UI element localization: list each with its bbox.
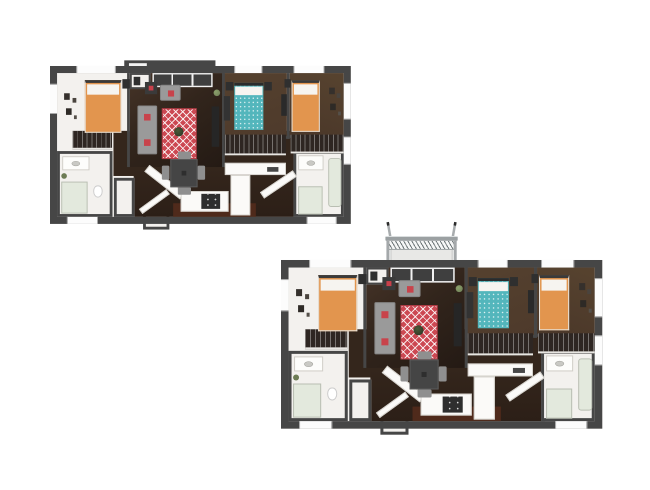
window <box>541 260 574 268</box>
dining-chair <box>400 366 408 381</box>
toilet-left <box>327 388 337 401</box>
vanity-right <box>546 355 573 371</box>
window <box>478 260 508 268</box>
wall-art-left <box>64 93 70 100</box>
nightstand-right <box>531 274 538 283</box>
dresser-middle <box>467 292 474 318</box>
closet-middle <box>468 333 533 355</box>
armchair <box>160 85 181 101</box>
wall-art-left <box>296 289 302 296</box>
vanity-left <box>294 356 323 371</box>
dining-chair <box>178 187 191 195</box>
bed-middle-teal <box>478 278 509 328</box>
floorplan-upper-left <box>50 66 351 224</box>
side-table <box>145 82 157 94</box>
balcony-deck <box>390 250 452 262</box>
window <box>281 279 289 311</box>
water-closet <box>114 178 135 217</box>
dining-chair <box>198 166 206 180</box>
kitchen-counter-peninsula <box>468 363 533 376</box>
nightstand-middle-right <box>510 277 518 286</box>
plant-icon <box>214 90 221 97</box>
bed-right-orange <box>539 275 569 330</box>
plant-icon <box>293 374 299 380</box>
coffee-table-plant <box>414 325 424 335</box>
kitchen-counter-right <box>474 376 495 419</box>
closet-right <box>538 333 595 353</box>
dresser-middle <box>224 96 230 120</box>
kitchen-counter-peninsula <box>225 163 286 175</box>
nightstand-left <box>358 274 366 284</box>
dining-chair <box>162 166 170 180</box>
bed-middle-teal <box>234 83 263 130</box>
stove <box>443 397 463 413</box>
dining-chair <box>418 390 432 398</box>
floorplan-lower-right <box>281 260 602 429</box>
shower-left <box>61 182 87 214</box>
dining-table <box>170 159 197 187</box>
plant-icon <box>61 173 67 179</box>
dresser-middle-right <box>528 290 534 313</box>
nightstand-right <box>285 79 291 87</box>
closet-left <box>73 131 112 150</box>
vanity-left <box>62 156 89 170</box>
sofa <box>374 302 395 354</box>
dining-chair <box>418 351 432 359</box>
floorplan-image <box>0 0 650 490</box>
shower-right <box>298 186 322 214</box>
nightstand-middle-right <box>264 82 272 90</box>
kitchen-counter-right <box>230 175 250 215</box>
window <box>234 66 262 73</box>
dining-table <box>410 359 439 389</box>
bed-left-orange <box>318 275 357 331</box>
shower-left <box>293 383 321 417</box>
balcony-side-rail <box>386 241 389 262</box>
coffee-table-plant <box>174 127 183 136</box>
sofa <box>137 105 157 154</box>
tv-console <box>454 303 462 346</box>
wall-art-right <box>579 283 585 290</box>
water-closet <box>349 379 371 421</box>
closet-right <box>291 135 344 154</box>
balcony-side-rail <box>454 241 457 262</box>
balcony <box>385 222 457 262</box>
wall-art-right <box>329 88 335 95</box>
stove <box>201 194 220 209</box>
bathtub-right <box>328 158 341 207</box>
dining-chair <box>178 152 191 160</box>
side-table <box>382 277 395 290</box>
window <box>309 260 351 268</box>
nightstand-left <box>122 79 130 88</box>
window <box>299 421 332 429</box>
shower-right <box>546 389 572 419</box>
window <box>344 137 351 165</box>
toilet-left <box>93 185 102 197</box>
window <box>555 421 587 429</box>
balcony-railing-hatch <box>387 241 455 250</box>
window <box>50 84 57 114</box>
window <box>293 66 324 73</box>
dresser-middle-right <box>281 94 287 116</box>
nightstand-middle-left <box>226 82 234 90</box>
window <box>344 83 351 120</box>
nightstand-middle-left <box>469 277 477 286</box>
closet-left <box>305 329 347 349</box>
armchair <box>398 280 420 297</box>
dining-chair <box>439 366 447 381</box>
closet-middle <box>225 135 286 156</box>
plant-icon <box>456 285 463 292</box>
window <box>595 278 603 317</box>
entry-roof-bump <box>124 60 215 67</box>
window <box>595 335 603 365</box>
bathtub-right <box>578 358 592 410</box>
bed-left-orange <box>85 80 122 133</box>
vanity-right <box>298 155 323 170</box>
window <box>67 217 98 224</box>
bed-right-orange <box>292 80 320 132</box>
tv-console <box>212 106 220 146</box>
window <box>76 66 115 73</box>
window <box>307 217 337 224</box>
